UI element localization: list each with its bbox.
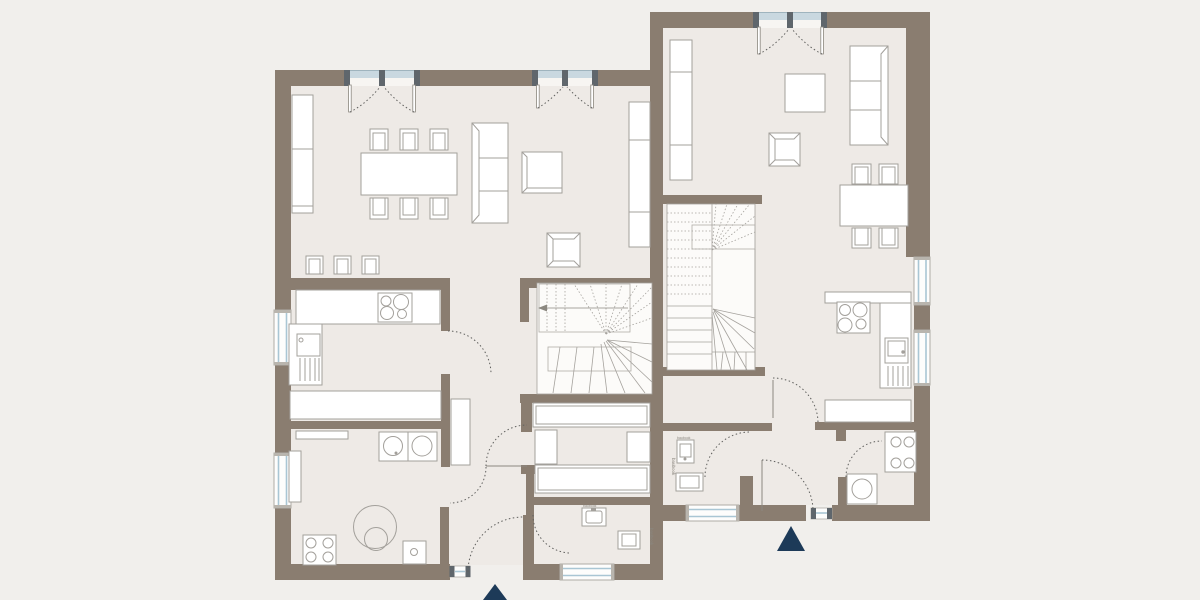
svg-text:baubook: baubook [677, 436, 691, 440]
svg-text:baubook: baubook [671, 458, 676, 476]
svg-text:baubook: baubook [649, 528, 654, 546]
svg-text:baubook: baubook [583, 504, 597, 508]
